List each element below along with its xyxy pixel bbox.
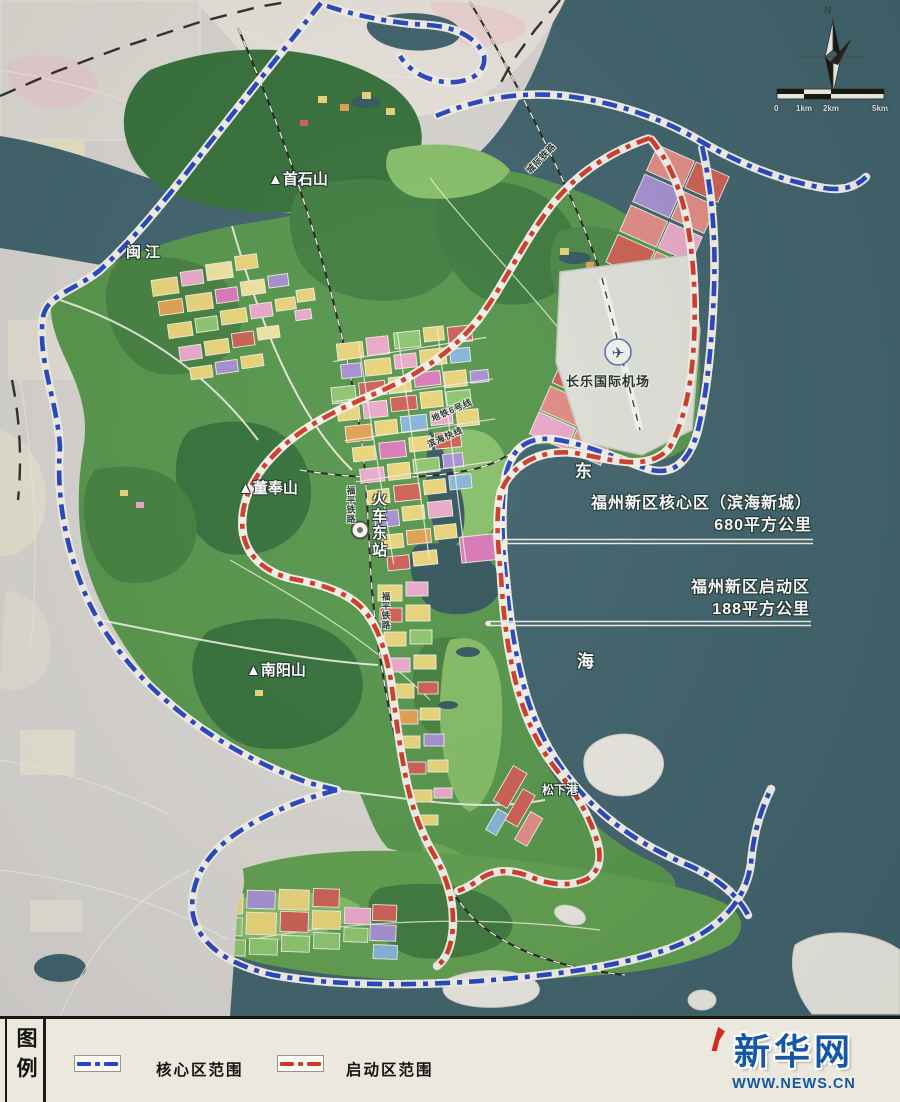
annotation-core-area: 福州新区核心区（滨海新城） 680平方公里 (500, 493, 812, 536)
legend-core-sample (74, 1055, 121, 1072)
xinhuanet-wordmark: 新华网 (704, 1023, 884, 1075)
label-songxia-port: 松下港 (542, 781, 578, 798)
scale-bar (777, 89, 884, 99)
planning-map-photo: ✈ (0, 0, 900, 1102)
label-changle-airport: 长乐国际机场 (566, 371, 650, 390)
compass-north-label: N (824, 5, 831, 16)
core-boundary-line-sample (77, 1062, 118, 1066)
bottom-left-land (0, 820, 244, 1016)
startup-boundary-line-sample (280, 1062, 321, 1066)
legend-title: 图例 (10, 1027, 40, 1097)
scale-tick-1: 1km (796, 104, 812, 113)
airplane-icon: ✈ (612, 345, 625, 362)
scale-tick-0: 0 (774, 104, 778, 113)
legend-divider-outer (5, 1019, 7, 1102)
legend-core-label: 核心区范围 (156, 1058, 244, 1080)
scale-tick-3: 5km (872, 104, 888, 113)
label-min-river: 闽江 (126, 241, 164, 262)
label-east-sea-1: 东 (575, 457, 592, 482)
legend-startup-label: 启动区范围 (346, 1058, 434, 1080)
annotation-startup-line2: 188平方公里 (500, 599, 810, 621)
label-fuping-railway-1: 福平铁路 (345, 486, 357, 524)
xinhuanet-logo: 新华网 WWW.NEWS.CN (704, 1023, 884, 1092)
label-east-sea-2: 海 (577, 647, 594, 672)
legend-divider-inner (43, 1019, 46, 1102)
legend-startup-sample (277, 1055, 324, 1072)
label-railway-east-station: 火车东站 (368, 491, 389, 559)
label-nanyang-mountain: ▲南阳山 (246, 659, 306, 680)
label-dongfeng-mountain: ▲董奉山 (238, 477, 298, 498)
annotation-startup-area: 福州新区启动区 188平方公里 (500, 577, 810, 620)
scale-tick-2: 2km (823, 104, 839, 113)
legend-bar: 图例 核心区范围 启动区范围 新华网 WWW.NEWS.CN (0, 1016, 900, 1102)
annotation-core-line2: 680平方公里 (500, 515, 812, 537)
label-shoushi-mountain: ▲首石山 (268, 168, 328, 189)
annotation-core-line1: 福州新区核心区（滨海新城） (500, 493, 812, 515)
xinhuanet-url: WWW.NEWS.CN (704, 1076, 884, 1092)
label-fuping-railway-2: 福平铁路 (380, 592, 392, 630)
annotation-startup-line1: 福州新区启动区 (500, 577, 810, 599)
railway-station-icon (352, 522, 369, 539)
